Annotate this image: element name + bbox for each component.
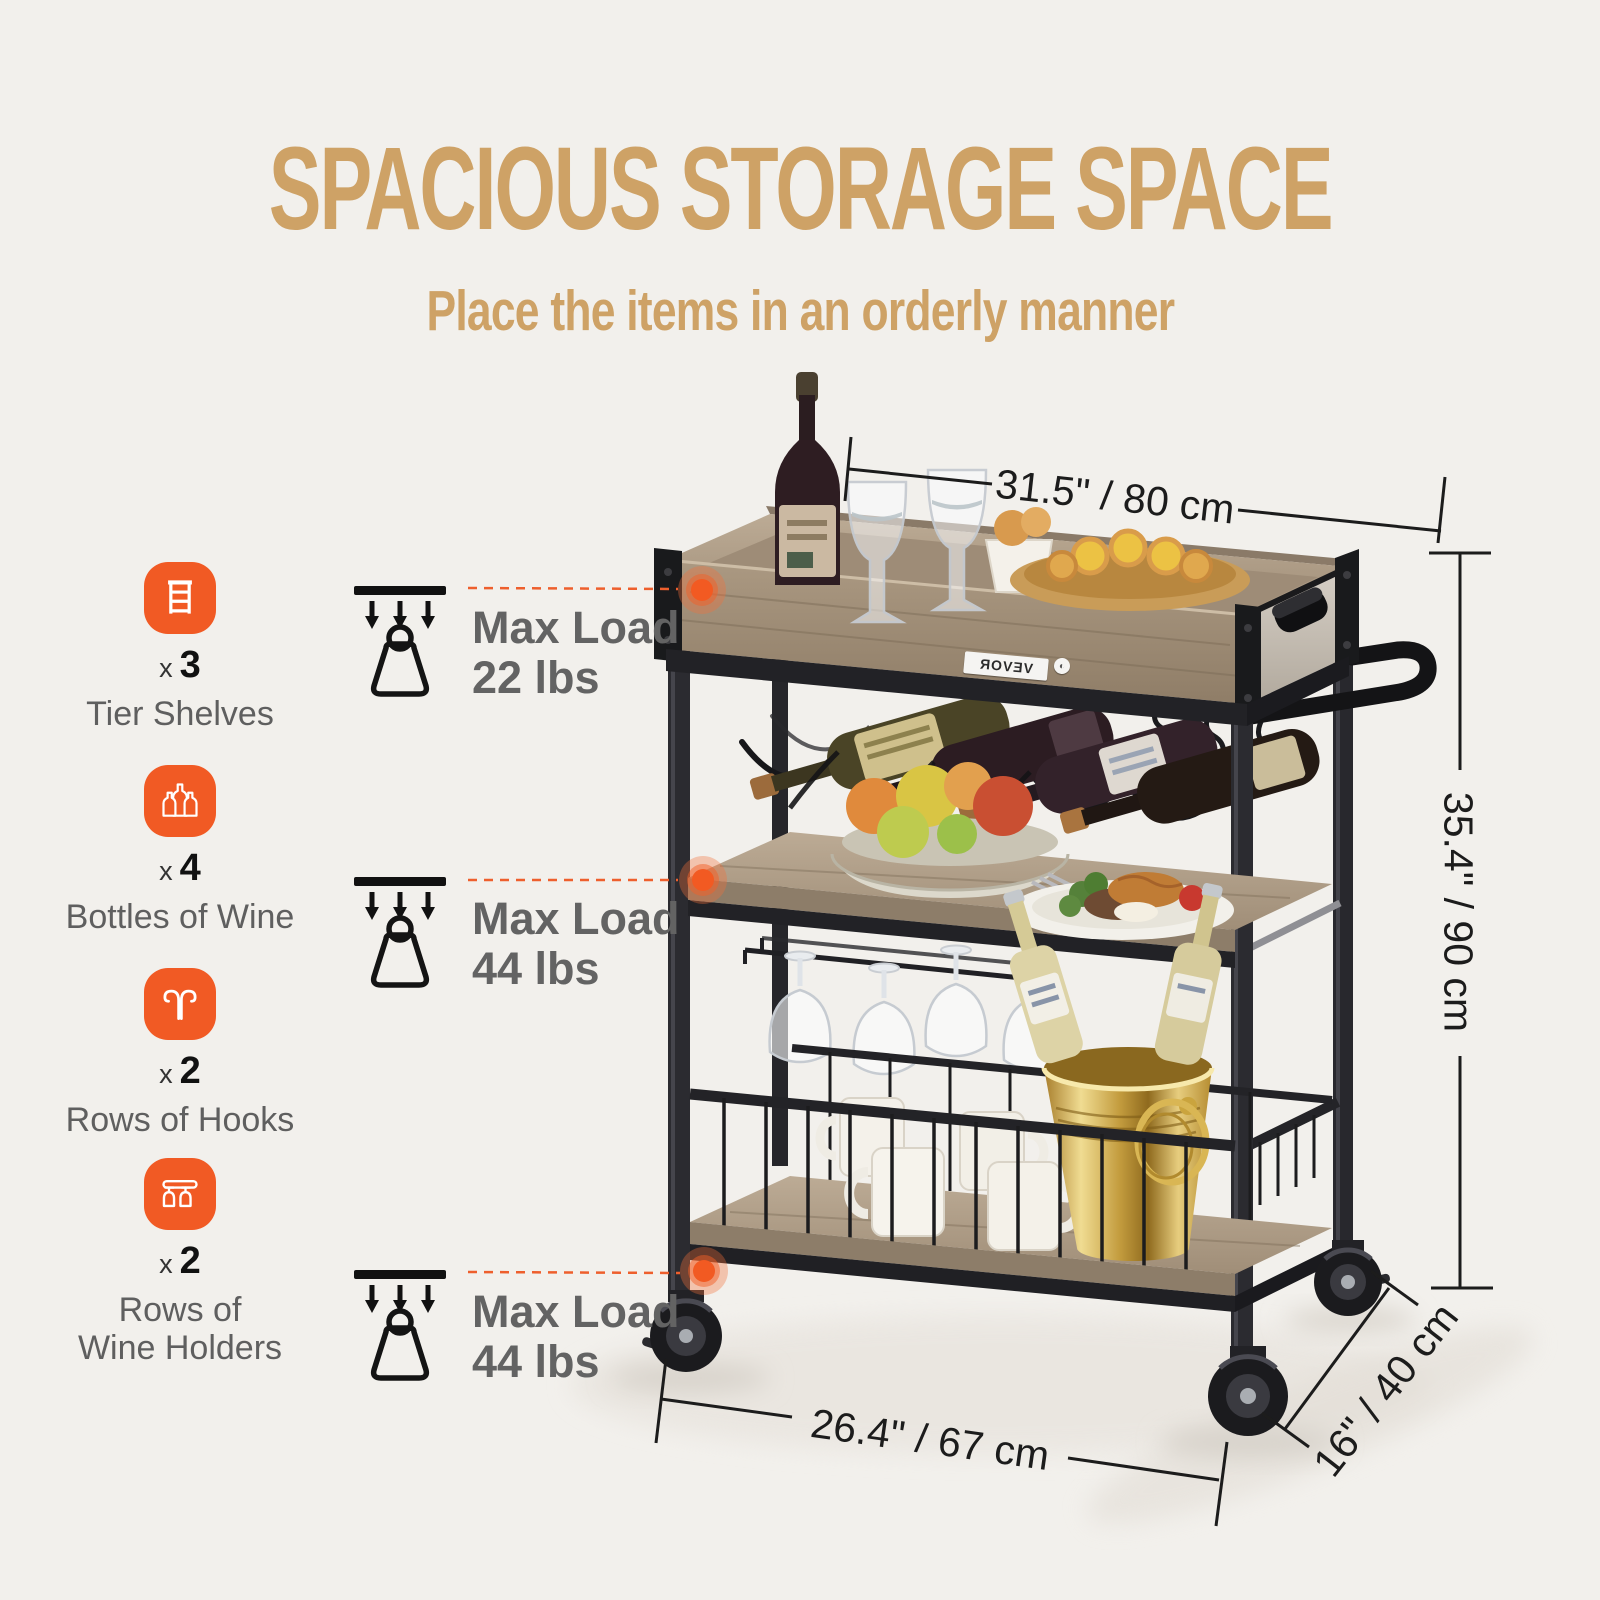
load-point-dots bbox=[678, 566, 728, 1295]
feature-label: Rows of Hooks bbox=[0, 1101, 360, 1139]
dimension-height: 35.4" / 90 cm bbox=[1435, 792, 1482, 1032]
feature-label: Rows of Wine Holders bbox=[0, 1291, 360, 1367]
max-load-callout-middle: Max Load44 lbs bbox=[472, 894, 680, 994]
feature-badge bbox=[144, 1158, 216, 1230]
feature-badge bbox=[144, 562, 216, 634]
feature-badge bbox=[144, 968, 216, 1040]
feature-label: Bottles of Wine bbox=[0, 898, 360, 936]
feature-rows-of-wine-holders: x2 Rows of Wine Holders bbox=[0, 1158, 360, 1367]
feature-count: x2 bbox=[0, 1052, 360, 1090]
page-subtitle: Place the items in an orderly manner bbox=[0, 278, 1600, 344]
wine-glass-holders-icon bbox=[158, 1172, 202, 1216]
feature-bottles-of-wine: x4 Bottles of Wine bbox=[0, 765, 360, 936]
feature-tier-shelves: x3 Tier Shelves bbox=[0, 562, 360, 733]
wine-bottles-icon bbox=[158, 779, 202, 823]
feature-label: Tier Shelves bbox=[0, 695, 360, 733]
feature-count: x4 bbox=[0, 849, 360, 887]
max-load-weight-icon bbox=[350, 875, 450, 993]
feature-rows-of-hooks: x2 Rows of Hooks bbox=[0, 968, 360, 1139]
hooks-icon bbox=[158, 982, 202, 1026]
feature-count: x3 bbox=[0, 646, 360, 684]
max-load-weight-icon bbox=[350, 1268, 450, 1386]
feature-count: x2 bbox=[0, 1242, 360, 1280]
feature-badge bbox=[144, 765, 216, 837]
max-load-callout-top: Max Load22 lbs bbox=[472, 603, 680, 703]
page-title: SPACIOUS STORAGE SPACE bbox=[0, 128, 1600, 252]
tier-shelves-icon bbox=[158, 576, 202, 620]
max-load-weight-icon bbox=[350, 584, 450, 702]
max-load-callout-bottom: Max Load44 lbs bbox=[472, 1287, 680, 1387]
dimension-lines bbox=[656, 437, 1493, 1526]
